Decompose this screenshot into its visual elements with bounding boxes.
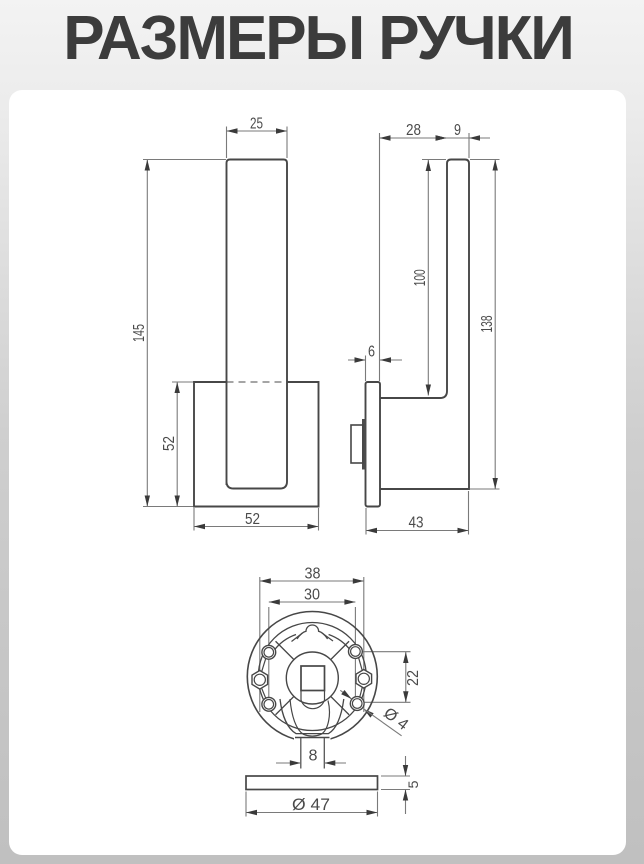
svg-text:43: 43 bbox=[409, 515, 424, 532]
svg-text:38: 38 bbox=[305, 566, 321, 583]
svg-text:52: 52 bbox=[161, 436, 178, 451]
svg-text:145: 145 bbox=[131, 324, 148, 342]
svg-text:28: 28 bbox=[406, 122, 421, 139]
svg-text:52: 52 bbox=[245, 511, 260, 528]
svg-text:138: 138 bbox=[479, 316, 496, 333]
svg-text:100: 100 bbox=[412, 269, 429, 286]
svg-text:9: 9 bbox=[454, 122, 461, 139]
svg-text:22: 22 bbox=[405, 670, 422, 686]
svg-text:5: 5 bbox=[405, 780, 421, 788]
svg-text:8: 8 bbox=[309, 748, 318, 765]
svg-text:6: 6 bbox=[368, 344, 375, 361]
svg-text:25: 25 bbox=[250, 116, 263, 133]
svg-text:Ø 4: Ø 4 bbox=[380, 705, 411, 734]
svg-text:Ø 47: Ø 47 bbox=[292, 795, 330, 814]
svg-text:30: 30 bbox=[304, 587, 320, 604]
